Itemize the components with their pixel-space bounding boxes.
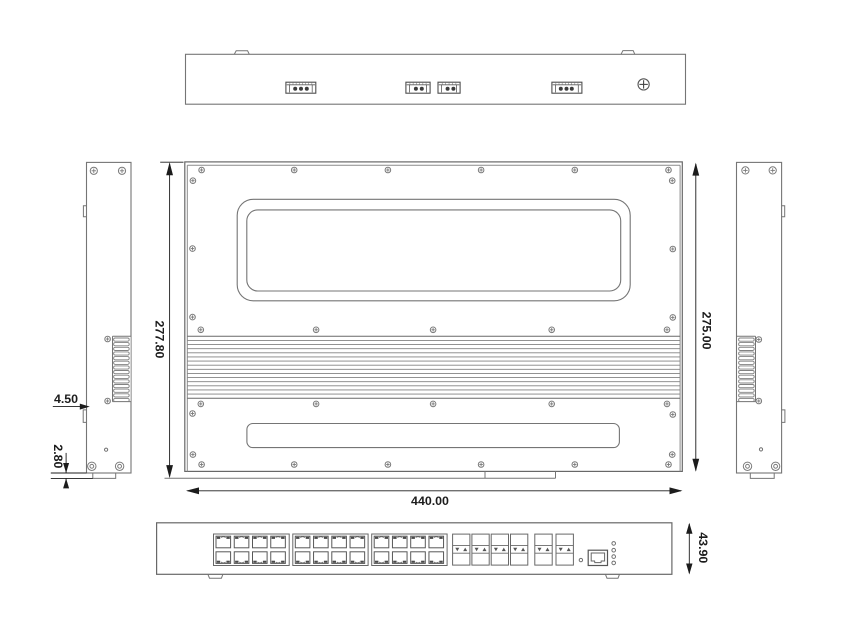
svg-text:4.50: 4.50	[54, 392, 78, 406]
svg-text:275.00: 275.00	[699, 312, 713, 350]
svg-text:43.90: 43.90	[696, 532, 710, 563]
svg-text:440.00: 440.00	[411, 494, 449, 508]
svg-text:277.80: 277.80	[152, 321, 166, 359]
svg-text:2.80: 2.80	[51, 444, 65, 468]
